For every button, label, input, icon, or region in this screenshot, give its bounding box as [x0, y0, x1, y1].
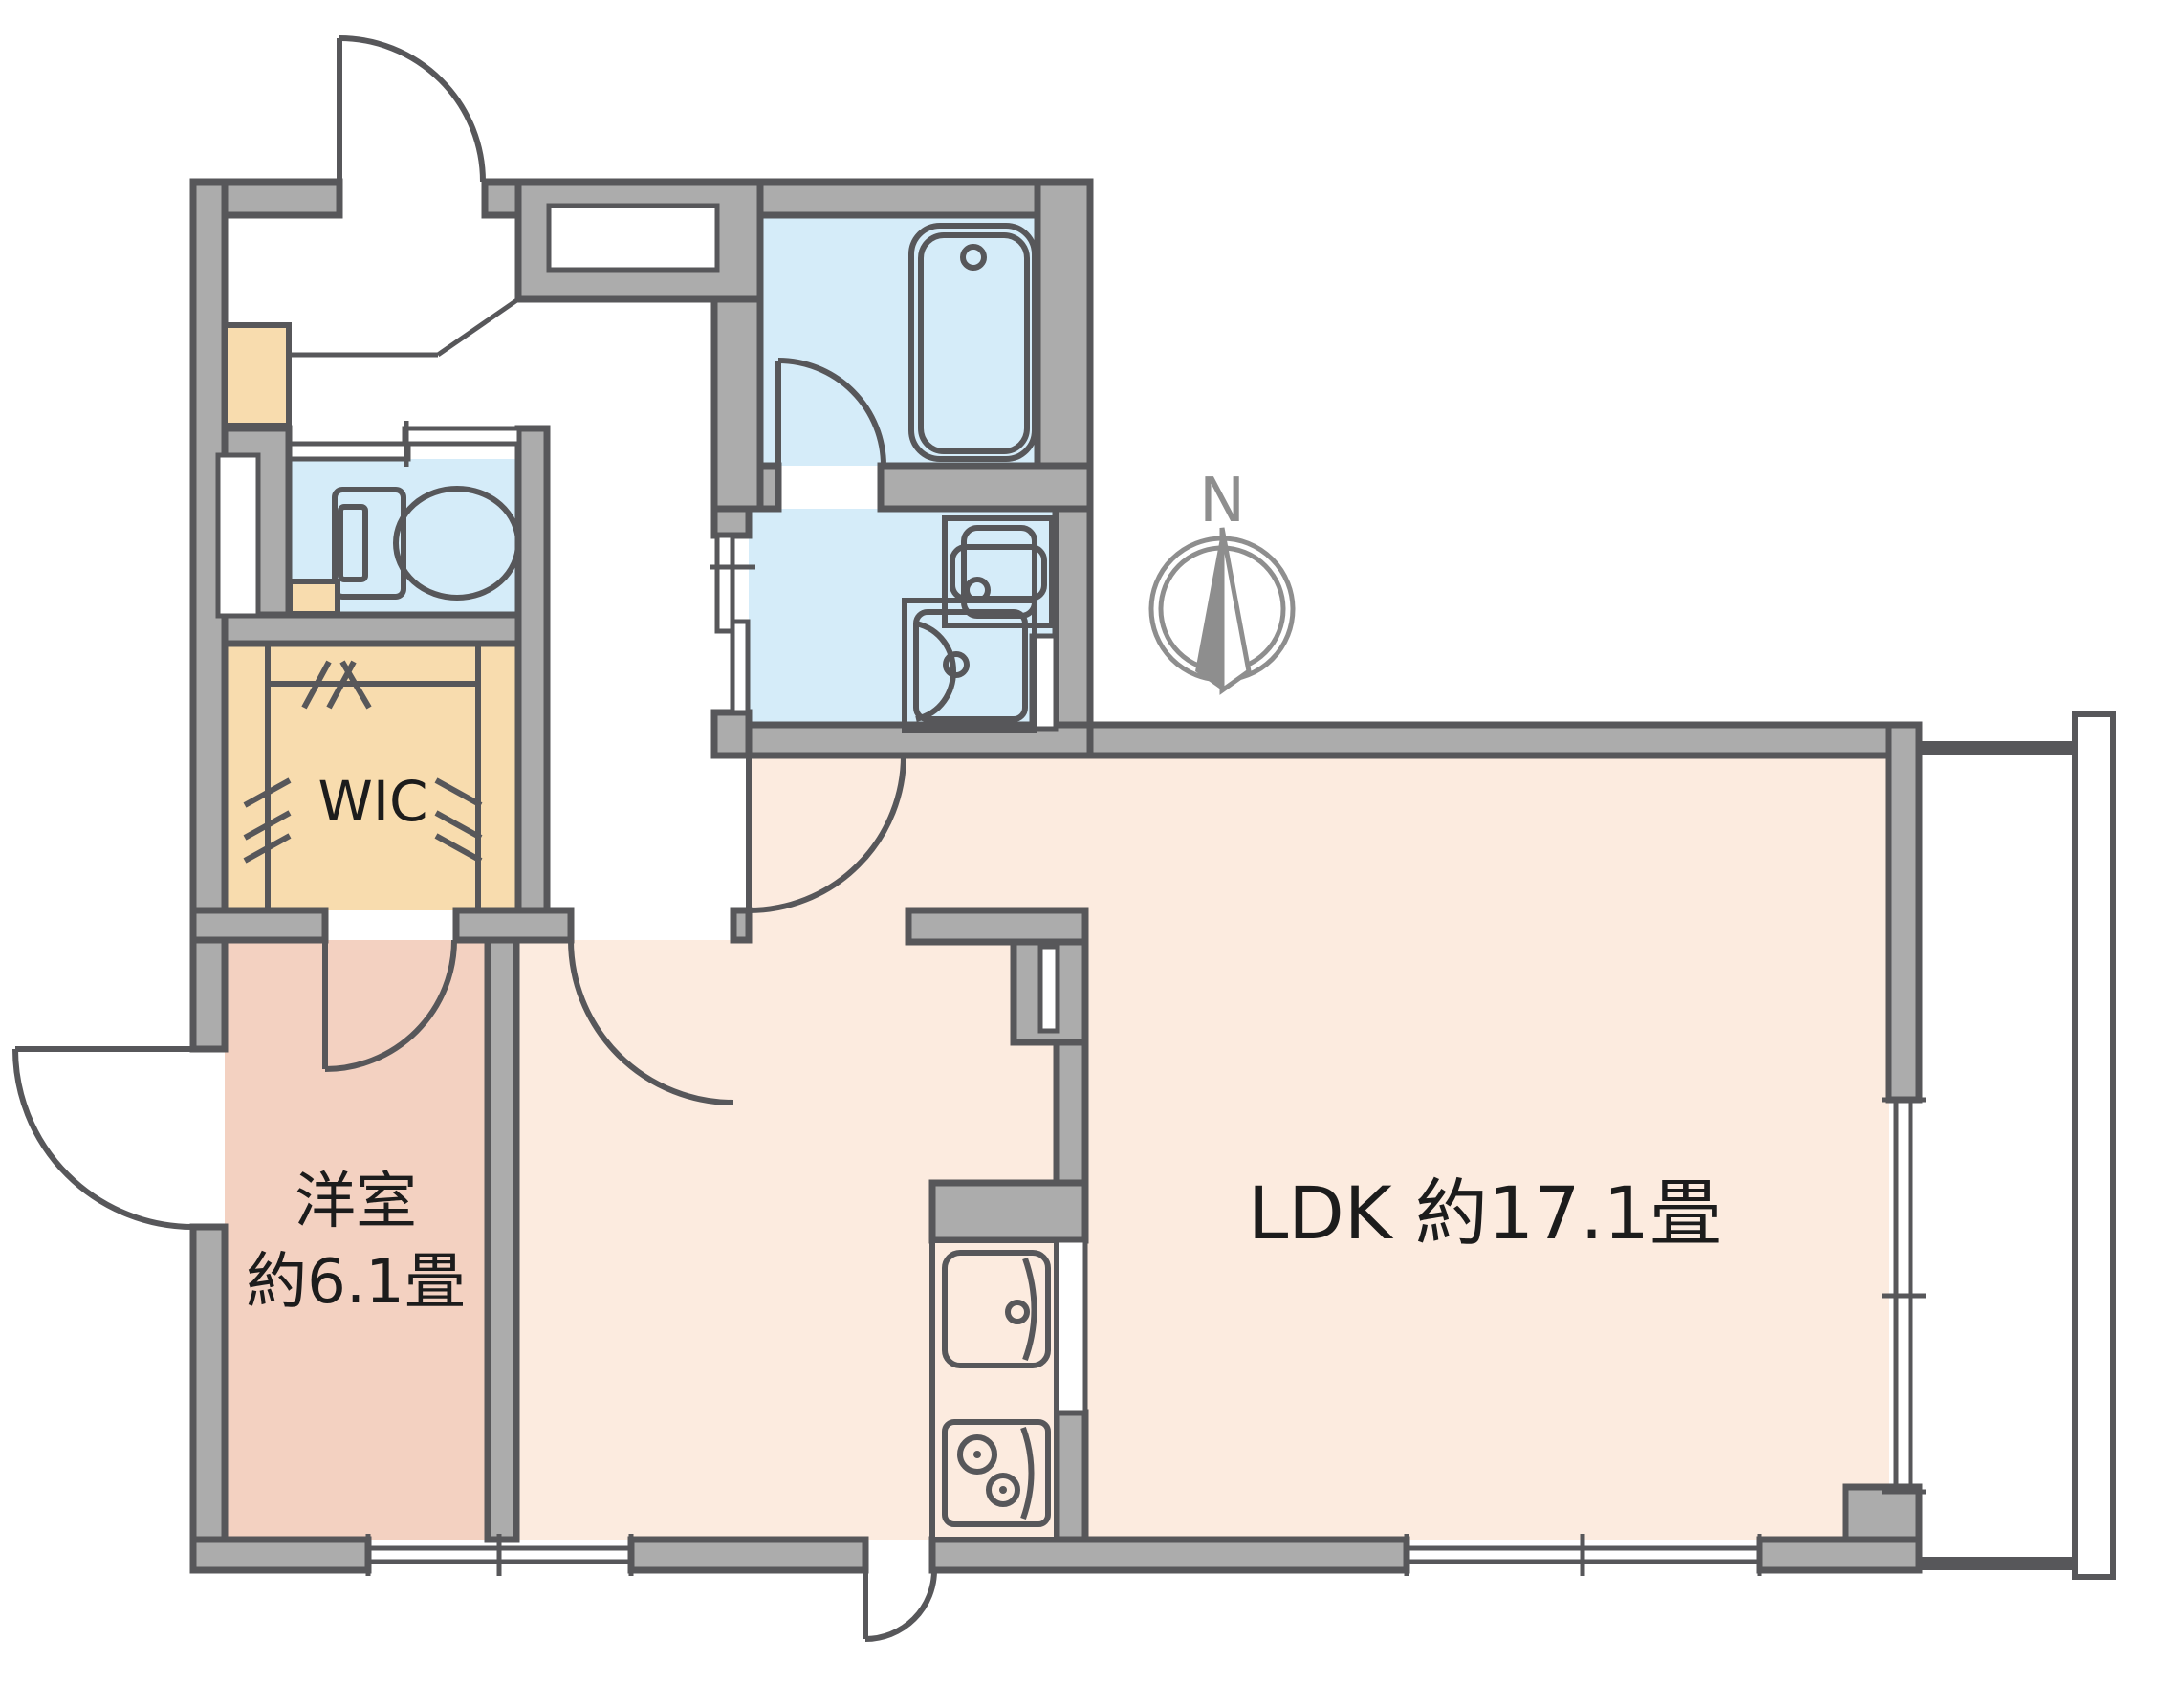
- balcony-bottom-bar: [1919, 1557, 2075, 1570]
- balcony-top-bar: [1919, 741, 2075, 755]
- western-room-outward-door: [15, 1049, 193, 1227]
- wall-bath-bottom-right: [881, 466, 1090, 509]
- ldk-label: LDK 約17.1畳: [1248, 1170, 1722, 1256]
- wall-ldk-right-upper: [1889, 725, 1919, 1100]
- wall-bottom-4: [1759, 1540, 1919, 1570]
- window-western-room-south: [368, 1534, 631, 1576]
- wic-label: WIC: [318, 769, 428, 834]
- washroom-sliding-door: [710, 536, 755, 712]
- kitchen-pass-opening: [1057, 1240, 1085, 1412]
- wall-left-lower: [193, 1227, 225, 1540]
- bottom-service-door: [865, 1570, 934, 1639]
- entrance-step: [289, 299, 518, 355]
- wall-room-divider: [488, 940, 516, 1540]
- floorplan-page: N LDK 約17.1畳 洋室 約6.1畳 WIC: [0, 0, 2184, 1706]
- compass-north-label: N: [1199, 466, 1245, 536]
- wall-bath-bottom-left: [760, 466, 778, 509]
- wall-top-door-right: [485, 182, 518, 215]
- kitchen-wall-slot: [1040, 947, 1058, 1031]
- wall-corridor-south-stub: [733, 910, 749, 940]
- toilet-counter: [290, 581, 338, 614]
- wall-wic-south-left: [193, 910, 325, 940]
- wall-kitchen-bar-mid: [932, 1183, 1085, 1240]
- entrance-door: [339, 38, 483, 182]
- wall-bath-right: [1037, 182, 1090, 466]
- ldk-floor: [516, 755, 1889, 1540]
- wall-washroom-right: [1056, 509, 1090, 755]
- wall-bottom-2: [631, 1540, 865, 1570]
- shoe-cabinet: [225, 325, 289, 426]
- western-room-floor: [225, 940, 488, 1540]
- floorplan-drawing: N LDK 約17.1畳 洋室 約6.1畳 WIC: [0, 0, 2184, 1706]
- wall-washroom-stub-top: [714, 509, 749, 536]
- compass: N: [1151, 466, 1293, 690]
- kitchen-counter: [932, 1240, 1057, 1540]
- balcony: [1919, 714, 2113, 1577]
- entrance-storage-niche: [549, 206, 717, 270]
- wall-bath-left: [714, 299, 760, 509]
- western-room-label-line1: 洋室: [295, 1167, 417, 1237]
- western-room-label-line2: 約6.1畳: [246, 1247, 466, 1318]
- wall-wic-south-right: [456, 910, 571, 940]
- wall-spine: [518, 428, 547, 940]
- wall-kitchen-vertical: [1057, 1042, 1085, 1183]
- balcony-railing: [2075, 714, 2113, 1577]
- wall-bottom-3: [932, 1540, 1407, 1570]
- wall-kitchen-lower: [1057, 1412, 1085, 1540]
- window-ldk-south: [1407, 1534, 1759, 1576]
- wall-ldk-top-east: [1090, 725, 1919, 755]
- bathroom-floor: [760, 215, 1037, 466]
- wall-toilet-wic: [225, 615, 518, 644]
- wall-ldk-corner-block: [1845, 1487, 1919, 1540]
- wall-bottom-1: [193, 1540, 368, 1570]
- wall-washroom-stub-bottom: [714, 712, 749, 755]
- toilet-side-window: [218, 455, 258, 616]
- wall-kitchen-bar-top: [908, 910, 1085, 942]
